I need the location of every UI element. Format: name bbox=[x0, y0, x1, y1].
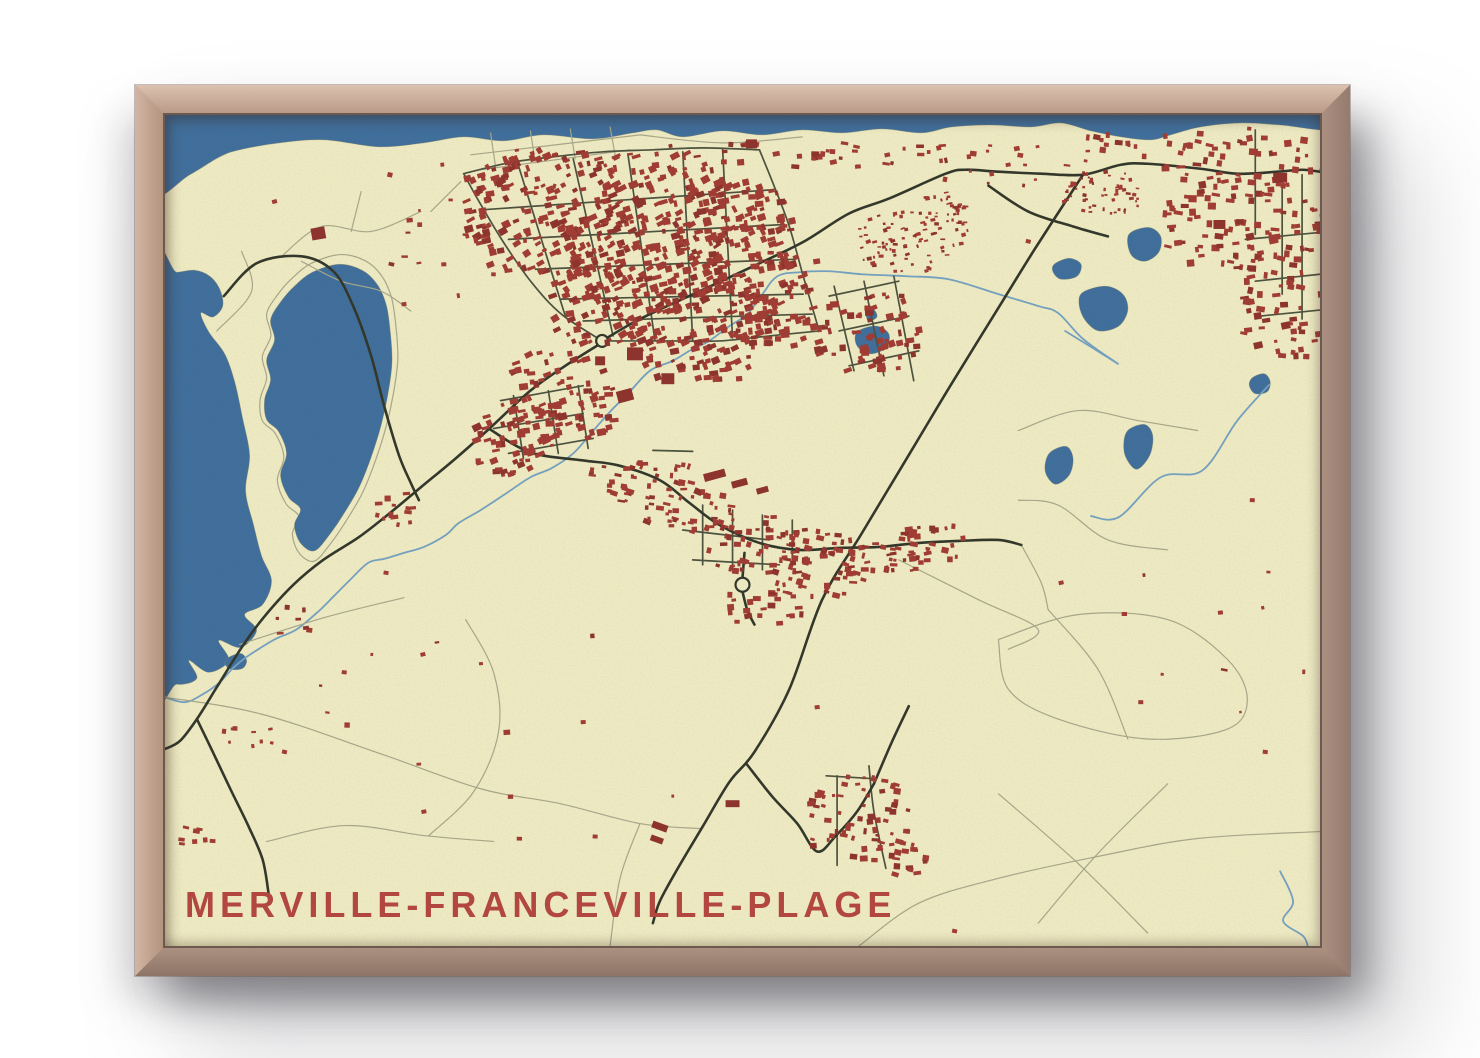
frame-edge-top bbox=[135, 85, 1350, 113]
poster-frame: MERVILLE-FRANCEVILLE-PLAGE bbox=[135, 85, 1350, 976]
frame-edge-left bbox=[135, 85, 163, 976]
frame-edge-right bbox=[1322, 85, 1350, 976]
frame-edge-bottom bbox=[135, 948, 1350, 976]
page-background: MERVILLE-FRANCEVILLE-PLAGE bbox=[0, 0, 1480, 1058]
map-print: MERVILLE-FRANCEVILLE-PLAGE bbox=[163, 113, 1322, 948]
map-title: MERVILLE-FRANCEVILLE-PLAGE bbox=[185, 884, 896, 926]
map-canvas bbox=[165, 115, 1320, 946]
map-layers bbox=[165, 115, 1320, 946]
